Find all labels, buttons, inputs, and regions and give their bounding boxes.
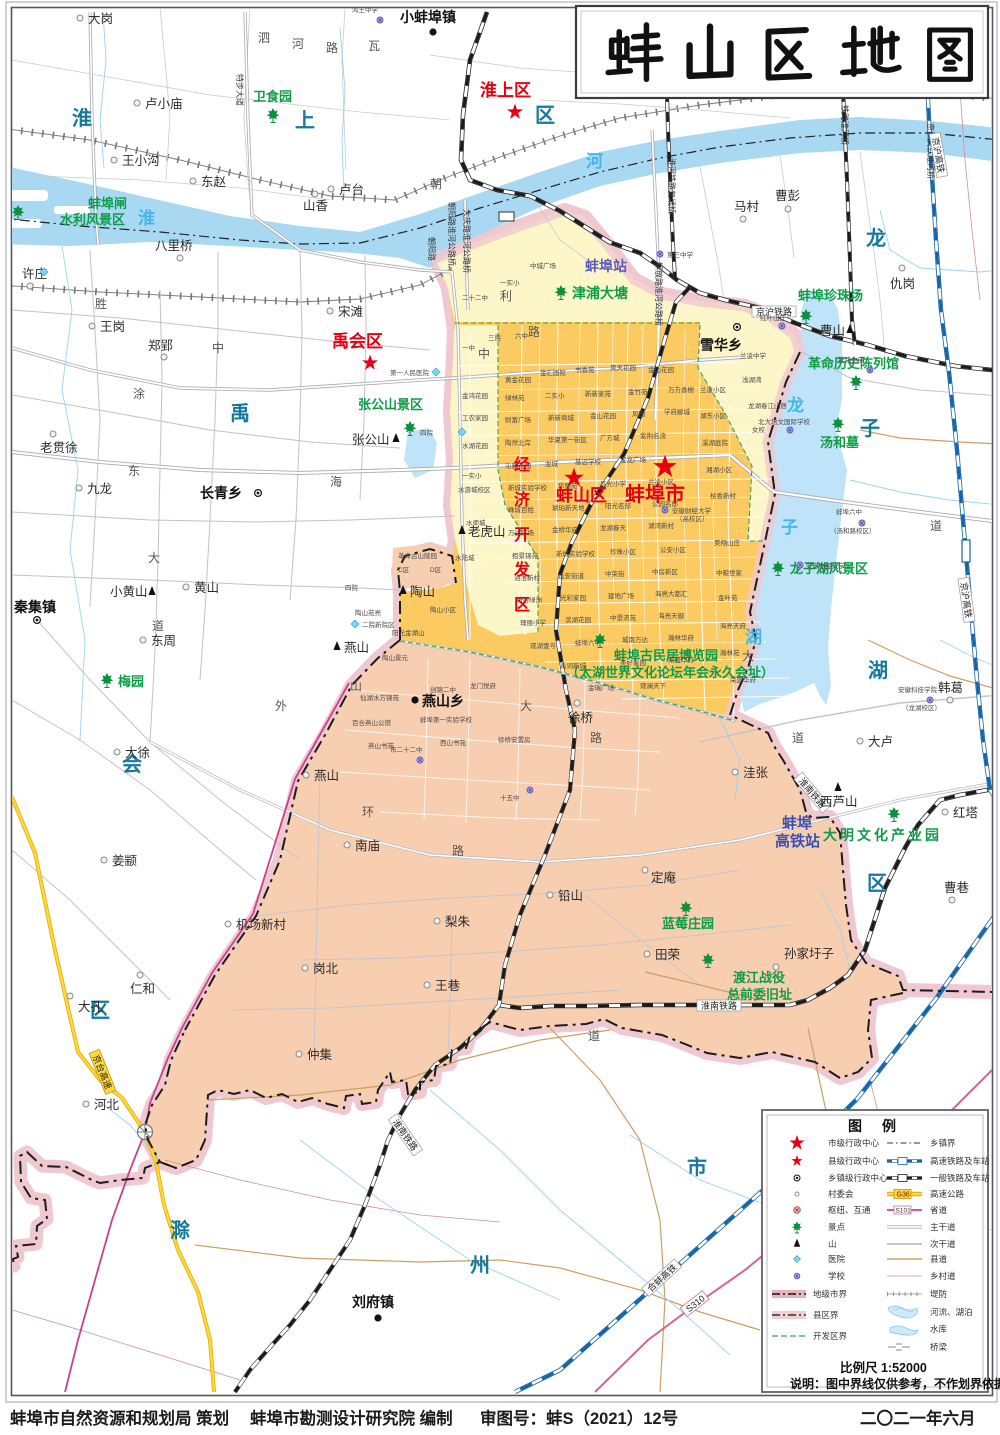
svg-text:燕山乡: 燕山乡 — [422, 693, 464, 709]
svg-text:中: 中 — [478, 346, 490, 361]
svg-text:燕山: 燕山 — [344, 641, 369, 655]
svg-text:说明：图中界线仅供参考，不作划界依据: 说明：图中界线仅供参考，不作划界依据 — [790, 1376, 1000, 1391]
svg-text:红叶山庄: 红叶山庄 — [760, 313, 787, 322]
svg-text:财富广场: 财富广场 — [505, 415, 532, 424]
svg-text:龙城: 龙城 — [545, 459, 559, 468]
svg-text:黄金花园: 黄金花园 — [505, 375, 531, 384]
svg-text:S101: S101 — [896, 1208, 912, 1215]
svg-text:蚌埠珍珠场: 蚌埠珍珠场 — [798, 288, 863, 303]
svg-text:中房新区: 中房新区 — [652, 567, 679, 576]
svg-text:风园: 风园 — [632, 410, 645, 418]
svg-text:C区: C区 — [398, 566, 410, 574]
svg-text:村委会: 村委会 — [828, 1189, 854, 1199]
svg-text:胜: 胜 — [95, 296, 107, 311]
svg-text:紫荆名流: 紫荆名流 — [640, 431, 667, 440]
svg-text:曹巷: 曹巷 — [944, 881, 970, 895]
svg-text:二〇二一年六月: 二〇二一年六月 — [860, 1408, 976, 1428]
svg-text:王岗: 王岗 — [100, 320, 125, 334]
svg-text:昌光小学: 昌光小学 — [600, 479, 627, 488]
svg-text:大庆路淮河公路桥: 大庆路淮河公路桥 — [462, 209, 472, 273]
svg-text:燕山: 燕山 — [314, 769, 339, 783]
svg-text:路: 路 — [452, 843, 464, 858]
svg-text:八里桥: 八里桥 — [155, 239, 193, 253]
svg-text:老虎山: 老虎山 — [468, 525, 506, 539]
svg-text:图例: 图例 — [848, 1118, 916, 1134]
svg-text:海亮天御: 海亮天御 — [658, 611, 685, 620]
svg-text:基远学校: 基远学校 — [575, 457, 602, 466]
svg-text:浅湖湾: 浅湖湾 — [742, 375, 762, 384]
svg-text:龙湖春天: 龙湖春天 — [600, 523, 627, 532]
svg-text:创锦二中: 创锦二中 — [430, 685, 456, 694]
svg-text:蚌埠第一实验学校: 蚌埠第一实验学校 — [420, 715, 473, 724]
svg-text:张公山: 张公山 — [352, 432, 390, 447]
svg-text:道: 道 — [152, 619, 164, 633]
svg-text:公安小区: 公安小区 — [660, 545, 687, 554]
svg-text:路: 路 — [528, 324, 540, 339]
svg-text:金鸿花园: 金鸿花园 — [462, 391, 488, 400]
svg-text:定庵: 定庵 — [651, 870, 677, 885]
svg-text:淮: 淮 — [138, 209, 155, 228]
svg-text:上: 上 — [295, 109, 315, 132]
svg-text:道: 道 — [930, 519, 942, 533]
svg-text:徐桥安置房: 徐桥安置房 — [498, 735, 531, 744]
svg-text:一中: 一中 — [462, 343, 475, 352]
svg-text:蓝莓庄园: 蓝莓庄园 — [662, 916, 714, 931]
svg-text:金山花园: 金山花园 — [648, 365, 674, 374]
svg-text:金叶苑: 金叶苑 — [718, 593, 738, 602]
svg-text:仙湖水方锦苑: 仙湖水方锦苑 — [360, 693, 400, 702]
svg-text:大徐: 大徐 — [125, 745, 150, 760]
svg-text:安徽科技学院: 安徽科技学院 — [898, 685, 938, 694]
svg-text:铁路淮河桥: 铁路淮河桥 — [840, 105, 850, 145]
svg-text:山香: 山香 — [303, 199, 329, 213]
svg-text:蚌埠: 蚌埠 — [782, 814, 812, 832]
svg-text:特步大道: 特步大道 — [235, 74, 245, 106]
svg-text:仁和: 仁和 — [130, 982, 155, 996]
svg-text:龙: 龙 — [866, 226, 886, 250]
svg-text:黄山: 黄山 — [194, 581, 219, 595]
svg-text:市级行政中心: 市级行政中心 — [828, 1138, 880, 1148]
svg-text:龙: 龙 — [786, 395, 804, 415]
svg-text:（高校区）: （高校区） — [676, 514, 709, 523]
svg-text:二院新院区: 二院新院区 — [362, 620, 395, 629]
svg-text:珠城百姓: 珠城百姓 — [508, 505, 535, 514]
svg-text:绿林苑: 绿林苑 — [505, 393, 525, 402]
svg-text:水游城校区: 水游城校区 — [458, 485, 491, 494]
svg-text:（汤和路校区）: （汤和路校区） — [830, 526, 876, 535]
svg-text:朝阳路淮河公路桥: 朝阳路淮河公路桥 — [447, 202, 457, 266]
svg-text:龙湖春江山居: 龙湖春江山居 — [748, 401, 788, 410]
svg-text:水库: 水库 — [930, 1324, 948, 1334]
svg-text:荣盛华府: 荣盛华府 — [730, 675, 757, 684]
svg-text:水利风景区: 水利风景区 — [60, 212, 125, 227]
svg-text:长青乡: 长青乡 — [200, 485, 242, 501]
svg-text:海亮大都汇: 海亮大都汇 — [655, 589, 688, 598]
svg-text:东: 东 — [128, 464, 140, 478]
svg-text:田荣: 田荣 — [655, 948, 681, 962]
svg-text:水师城: 水师城 — [466, 518, 486, 527]
svg-text:州: 州 — [470, 1254, 490, 1277]
svg-text:兰凌小区: 兰凌小区 — [648, 477, 675, 486]
svg-text:淮: 淮 — [72, 107, 92, 130]
svg-text:县区界: 县区界 — [813, 1310, 839, 1320]
svg-text:兰凌中学: 兰凌中学 — [740, 351, 767, 360]
svg-text:市二十二中: 市二十二中 — [390, 745, 423, 754]
svg-text:道: 道 — [588, 1029, 600, 1043]
svg-text:卫食园: 卫食园 — [253, 89, 292, 104]
svg-text:朝阳路: 朝阳路 — [427, 237, 437, 261]
svg-text:珍珠小区: 珍珠小区 — [610, 547, 637, 556]
svg-text:东周: 东周 — [151, 634, 176, 648]
svg-text:铁路中学: 铁路中学 — [838, 355, 865, 364]
svg-text:乡村道: 乡村道 — [930, 1271, 956, 1281]
svg-text:乡镇界: 乡镇界 — [930, 1138, 956, 1148]
svg-text:昊天花园: 昊天花园 — [610, 363, 636, 372]
svg-text:西芦山: 西芦山 — [820, 795, 858, 809]
svg-text:曹彭: 曹彭 — [775, 189, 801, 203]
svg-text:桧香新村: 桧香新村 — [710, 491, 737, 500]
svg-text:涂: 涂 — [133, 386, 145, 401]
svg-text:梅园: 梅园 — [118, 674, 144, 689]
svg-text:陶山: 陶山 — [410, 584, 435, 599]
svg-text:华夏第一街区: 华夏第一街区 — [548, 435, 588, 444]
svg-text:学府郦城: 学府郦城 — [664, 407, 691, 416]
svg-text:徐桥: 徐桥 — [568, 710, 594, 725]
svg-text:总前委旧址: 总前委旧址 — [727, 987, 792, 1002]
svg-text:东赵: 东赵 — [201, 175, 227, 189]
svg-text:蚌埠市勘测设计研究院 编制: 蚌埠市勘测设计研究院 编制 — [250, 1408, 453, 1428]
svg-text:高速公路: 高速公路 — [930, 1189, 965, 1199]
svg-text:系词新城: 系词新城 — [560, 661, 587, 670]
svg-text:新新家苑: 新新家苑 — [585, 389, 612, 398]
svg-text:马村: 马村 — [734, 200, 760, 214]
svg-text:兰凌小区: 兰凌小区 — [700, 385, 727, 394]
svg-text:城南万达: 城南万达 — [622, 635, 649, 644]
svg-text:大孔: 大孔 — [78, 1000, 104, 1014]
svg-text:比例尺 1:52000: 比例尺 1:52000 — [840, 1360, 927, 1375]
svg-text:机场新村: 机场新村 — [236, 917, 287, 932]
svg-text:瓦: 瓦 — [368, 39, 380, 53]
svg-text:瀚林苑: 瀚林苑 — [720, 648, 740, 657]
svg-text:小蚌埠镇: 小蚌埠镇 — [400, 9, 456, 25]
svg-text:新城实验学校: 新城实验学校 — [508, 483, 548, 492]
svg-text:金山花园: 金山花园 — [590, 411, 616, 420]
svg-text:美好家园: 美好家园 — [620, 658, 646, 667]
svg-text:蚌埠站: 蚌埠站 — [585, 258, 627, 274]
svg-text:西山书苑: 西山书苑 — [440, 738, 467, 747]
svg-text:王巷: 王巷 — [435, 979, 461, 993]
svg-text:河: 河 — [292, 37, 304, 51]
svg-text:公园名邸: 公园名邸 — [652, 499, 679, 508]
svg-text:郑郢: 郑郢 — [148, 338, 173, 353]
svg-text:瀚林华府: 瀚林华府 — [668, 633, 695, 642]
svg-text:河: 河 — [586, 152, 603, 171]
svg-text:山: 山 — [828, 1239, 837, 1249]
svg-text:区: 区 — [535, 105, 555, 127]
svg-text:一般铁路及车站: 一般铁路及车站 — [930, 1173, 990, 1183]
svg-text:第一人民医院: 第一人民医院 — [390, 368, 430, 377]
svg-text:二实小: 二实小 — [545, 391, 565, 400]
svg-text:延安街道: 延安街道 — [558, 571, 585, 580]
svg-text:滨湖花园: 滨湖花园 — [565, 615, 591, 624]
svg-text:湖湾新村: 湖湾新村 — [648, 521, 675, 530]
svg-text:河流、湖泊: 河流、湖泊 — [930, 1307, 973, 1317]
svg-text:解放路淮河公路桥: 解放路淮河公路桥 — [654, 262, 664, 326]
svg-text:大: 大 — [520, 699, 532, 713]
svg-text:金竹苑: 金竹苑 — [628, 387, 648, 396]
svg-text:山: 山 — [350, 679, 362, 693]
svg-text:地级市界: 地级市界 — [813, 1289, 848, 1299]
svg-text:卢台: 卢台 — [339, 182, 364, 197]
svg-text:水湖花园: 水湖花园 — [462, 441, 488, 450]
svg-text:主干道: 主干道 — [930, 1222, 956, 1232]
svg-text:泗: 泗 — [258, 31, 270, 45]
svg-text:开发区界: 开发区界 — [813, 1331, 848, 1341]
svg-text:一实小: 一实小 — [500, 278, 520, 287]
svg-text:陶山苑亮: 陶山苑亮 — [355, 608, 382, 617]
svg-text:百合燕山公馆: 百合燕山公馆 — [352, 718, 392, 727]
svg-text:新怡绿洲: 新怡绿洲 — [516, 595, 542, 604]
svg-text:老贯徐: 老贯徐 — [40, 440, 78, 455]
svg-text:子: 子 — [860, 418, 880, 440]
svg-text:琥珀新天地: 琥珀新天地 — [552, 503, 585, 512]
svg-text:宝龙广场: 宝龙广场 — [620, 455, 647, 464]
svg-text:高速铁路及车站: 高速铁路及车站 — [930, 1156, 990, 1166]
svg-text:四院: 四院 — [420, 428, 434, 437]
svg-text:乡镇级行政中心: 乡镇级行政中心 — [828, 1173, 888, 1183]
svg-text:中荣街: 中荣街 — [605, 569, 625, 578]
svg-text:红塔: 红塔 — [953, 805, 979, 820]
svg-text:市: 市 — [687, 1155, 707, 1179]
svg-text:蚌埠六中: 蚌埠六中 — [836, 507, 862, 516]
svg-text:陶山景元: 陶山景元 — [382, 653, 409, 662]
svg-text:建地广场: 建地广场 — [608, 591, 635, 600]
svg-text:路: 路 — [326, 40, 338, 55]
svg-text:利: 利 — [500, 289, 512, 303]
svg-text:汤和墓: 汤和墓 — [820, 435, 860, 450]
svg-text:仲集: 仲集 — [307, 1047, 333, 1062]
svg-text:洼张: 洼张 — [743, 765, 769, 780]
svg-text:仇岗: 仇岗 — [890, 277, 915, 291]
svg-text:次干道: 次干道 — [930, 1239, 956, 1249]
svg-text:阳光金湖山: 阳光金湖山 — [392, 628, 425, 637]
svg-text:张公山景区: 张公山景区 — [358, 397, 423, 412]
svg-text:县道: 县道 — [930, 1254, 948, 1264]
svg-text:燕山书苑: 燕山书苑 — [368, 741, 395, 750]
svg-text:县级行政中心: 县级行政中心 — [828, 1156, 880, 1166]
svg-text:桥梁: 桥梁 — [930, 1342, 948, 1352]
svg-text:（龙湖校区）: （龙湖校区） — [902, 703, 941, 712]
svg-text:广方城: 广方城 — [600, 433, 620, 442]
svg-text:大卢: 大卢 — [868, 734, 893, 749]
svg-text:海: 海 — [330, 474, 342, 489]
svg-text:华丽苑: 华丽苑 — [558, 481, 578, 490]
svg-text:孙家圩子: 孙家圩子 — [784, 946, 834, 961]
svg-text:光彩家园: 光彩家园 — [560, 593, 586, 602]
svg-text:湖: 湖 — [868, 659, 888, 682]
svg-text:宋滩: 宋滩 — [338, 304, 363, 319]
svg-text:刘府镇: 刘府镇 — [352, 1294, 394, 1310]
svg-text:景点: 景点 — [828, 1222, 846, 1232]
svg-text:禹会区: 禹会区 — [332, 331, 383, 351]
svg-text:审图号：蚌S（2021）12号: 审图号：蚌S（2021）12号 — [480, 1408, 678, 1428]
svg-text:金汇国际: 金汇国际 — [540, 368, 567, 377]
svg-text:秦集镇: 秦集镇 — [13, 599, 56, 615]
svg-text:瑰丽小学: 瑰丽小学 — [520, 618, 547, 627]
svg-text:女校: 女校 — [752, 425, 766, 434]
svg-text:河北: 河北 — [94, 1098, 120, 1112]
svg-text:四院: 四院 — [345, 583, 359, 592]
svg-text:昊翔山庄: 昊翔山庄 — [714, 538, 741, 547]
svg-text:中: 中 — [212, 340, 224, 355]
svg-text:学校: 学校 — [828, 1271, 846, 1281]
svg-text:十五中: 十五中 — [500, 793, 520, 802]
svg-text:南庙: 南庙 — [355, 838, 380, 853]
svg-text:禹: 禹 — [230, 402, 250, 425]
svg-text:新新商城: 新新商城 — [548, 413, 575, 422]
svg-text:安徽财经大学: 安徽财经大学 — [806, 561, 846, 570]
svg-text:一实小: 一实小 — [462, 471, 482, 480]
svg-text:栢景锦苑: 栢景锦苑 — [512, 551, 539, 560]
svg-text:中粮世家: 中粮世家 — [716, 568, 743, 577]
svg-text:淮上区: 淮上区 — [480, 81, 531, 100]
svg-text:枢纽、互通: 枢纽、互通 — [828, 1205, 871, 1215]
svg-text:万达广场: 万达广场 — [508, 528, 535, 537]
svg-text:陶山小区: 陶山小区 — [430, 605, 457, 614]
svg-text:二十二中: 二十二中 — [462, 293, 488, 302]
svg-text:革命古山陵园: 革命古山陵园 — [398, 551, 437, 560]
svg-text:岗北: 岗北 — [313, 962, 339, 976]
svg-text:堤防: 堤防 — [930, 1289, 948, 1299]
svg-text:龙门悦府: 龙门悦府 — [470, 681, 497, 690]
svg-text:中垦流苑: 中垦流苑 — [610, 613, 637, 622]
svg-text:渡江战役: 渡江战役 — [733, 970, 785, 985]
svg-text:曹山: 曹山 — [820, 324, 845, 338]
svg-text:韩葛: 韩葛 — [938, 680, 963, 695]
svg-text:G36: G36 — [897, 1192, 910, 1199]
svg-text:环: 环 — [362, 805, 374, 819]
svg-text:万方香榭: 万方香榭 — [668, 385, 695, 394]
svg-text:湖东小区: 湖东小区 — [700, 411, 727, 420]
svg-text:湖: 湖 — [745, 628, 762, 647]
svg-text:大明文化产业园: 大明文化产业园 — [823, 827, 942, 843]
svg-text:阳光名邸: 阳光名邸 — [605, 501, 632, 510]
svg-text:水陆城: 水陆城 — [455, 553, 475, 562]
svg-text:蚌埠六中: 蚌埠六中 — [575, 638, 601, 647]
svg-text:书香苑: 书香苑 — [575, 365, 595, 374]
svg-text:省道: 省道 — [930, 1205, 948, 1215]
svg-text:D区: D区 — [430, 566, 442, 574]
svg-text:湘湖小区: 湘湖小区 — [706, 465, 733, 474]
svg-text:金桥华府: 金桥华府 — [552, 525, 579, 534]
svg-text:高铁站: 高铁站 — [775, 832, 820, 850]
svg-text:子: 子 — [781, 518, 798, 537]
svg-text:第三中学: 第三中学 — [667, 250, 694, 259]
svg-text:外: 外 — [275, 699, 287, 713]
svg-text:大岗: 大岗 — [88, 12, 113, 26]
svg-text:观澜天下: 观澜天下 — [640, 681, 667, 690]
svg-text:姜颛: 姜颛 — [112, 853, 138, 868]
svg-text:海亮天府: 海亮天府 — [720, 621, 747, 630]
svg-text:路: 路 — [590, 730, 602, 745]
svg-text:梨朱: 梨朱 — [445, 915, 471, 929]
svg-text:道: 道 — [792, 731, 804, 745]
svg-text:小黄山: 小黄山 — [110, 585, 148, 599]
svg-text:溪湖庭院: 溪湖庭院 — [702, 438, 729, 447]
svg-text:沁雅花园: 沁雅花园 — [505, 461, 531, 470]
svg-text:淮河铁路复线桥: 淮河铁路复线桥 — [667, 158, 677, 214]
svg-text:三院: 三院 — [488, 333, 502, 342]
svg-text:中城广场: 中城广场 — [530, 261, 557, 270]
svg-text:工农家园: 工农家园 — [462, 413, 488, 422]
svg-text:六中: 六中 — [515, 331, 528, 340]
svg-text:新城实验学校: 新城实验学校 — [556, 549, 596, 558]
svg-text:雪华乡: 雪华乡 — [700, 337, 742, 353]
svg-text:区: 区 — [867, 873, 887, 895]
svg-text:金瑞广场: 金瑞广场 — [588, 683, 615, 692]
svg-text:大: 大 — [742, 649, 754, 663]
svg-text:治淮新村: 治淮新村 — [514, 573, 541, 582]
svg-text:九龙: 九龙 — [87, 482, 112, 496]
svg-text:蚌埠闸: 蚌埠闸 — [88, 196, 127, 211]
svg-text:蚌埠市自然资源和规划局 策划: 蚌埠市自然资源和规划局 策划 — [10, 1408, 229, 1428]
svg-text:陶然北岸: 陶然北岸 — [505, 438, 532, 447]
svg-text:滁: 滁 — [170, 1218, 191, 1242]
svg-text:观湖壹号: 观湖壹号 — [530, 641, 557, 650]
svg-text:大: 大 — [148, 551, 160, 565]
svg-text:医院: 医院 — [828, 1254, 846, 1264]
svg-text:津浦大塘: 津浦大塘 — [572, 285, 628, 301]
svg-text:北大培文国际学校: 北大培文国际学校 — [758, 417, 811, 426]
svg-text:王小沟: 王小沟 — [122, 154, 160, 168]
svg-text:铅山: 铅山 — [558, 889, 583, 903]
svg-text:卢小庙: 卢小庙 — [145, 96, 183, 111]
svg-text:荣盛华府: 荣盛华府 — [668, 655, 695, 664]
svg-text:朝: 朝 — [430, 177, 442, 191]
